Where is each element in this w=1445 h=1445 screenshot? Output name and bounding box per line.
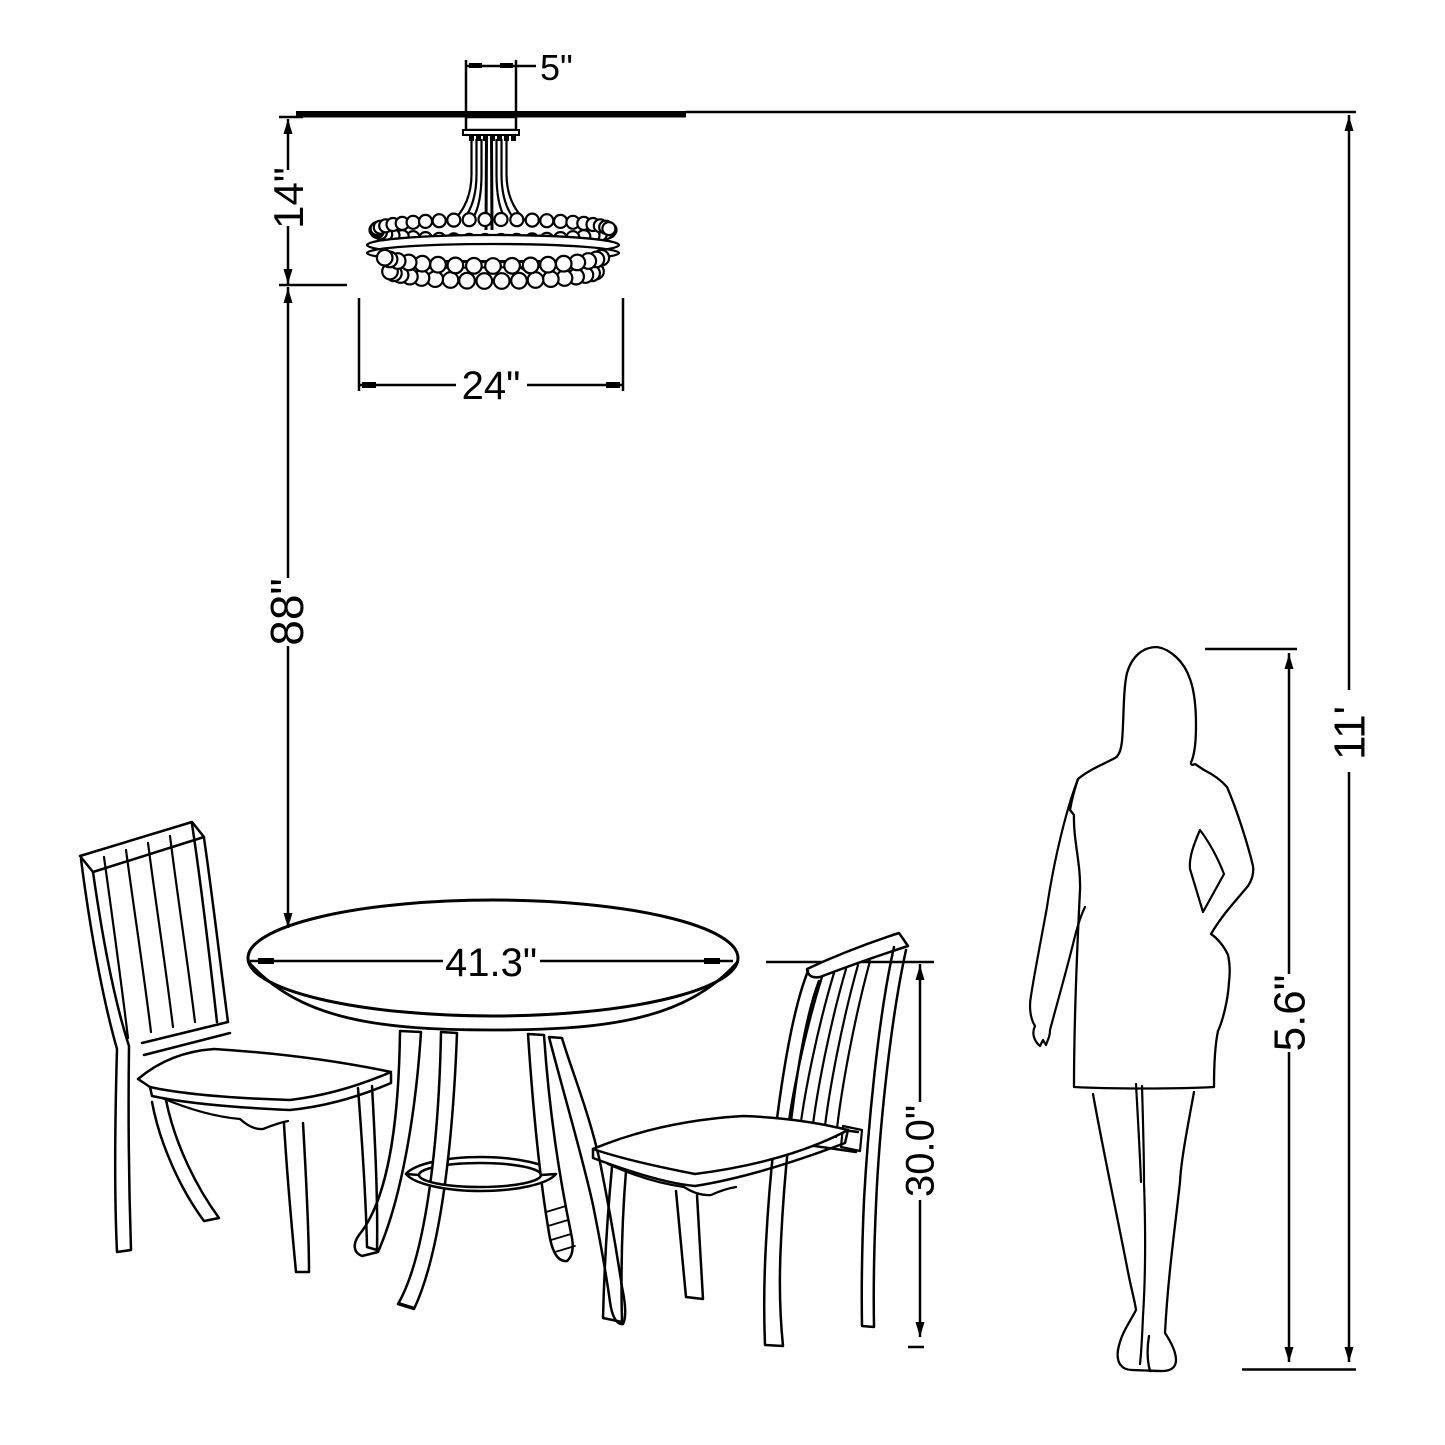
svg-text:5.6": 5.6" [1266,975,1315,1052]
svg-text:11': 11' [1326,706,1375,760]
svg-text:5": 5" [540,47,573,88]
svg-text:24": 24" [462,364,521,408]
svg-text:88": 88" [261,578,313,646]
svg-text:14": 14" [265,167,312,229]
svg-text:30.0": 30.0" [899,1105,943,1197]
svg-text:41.3": 41.3" [445,941,537,985]
